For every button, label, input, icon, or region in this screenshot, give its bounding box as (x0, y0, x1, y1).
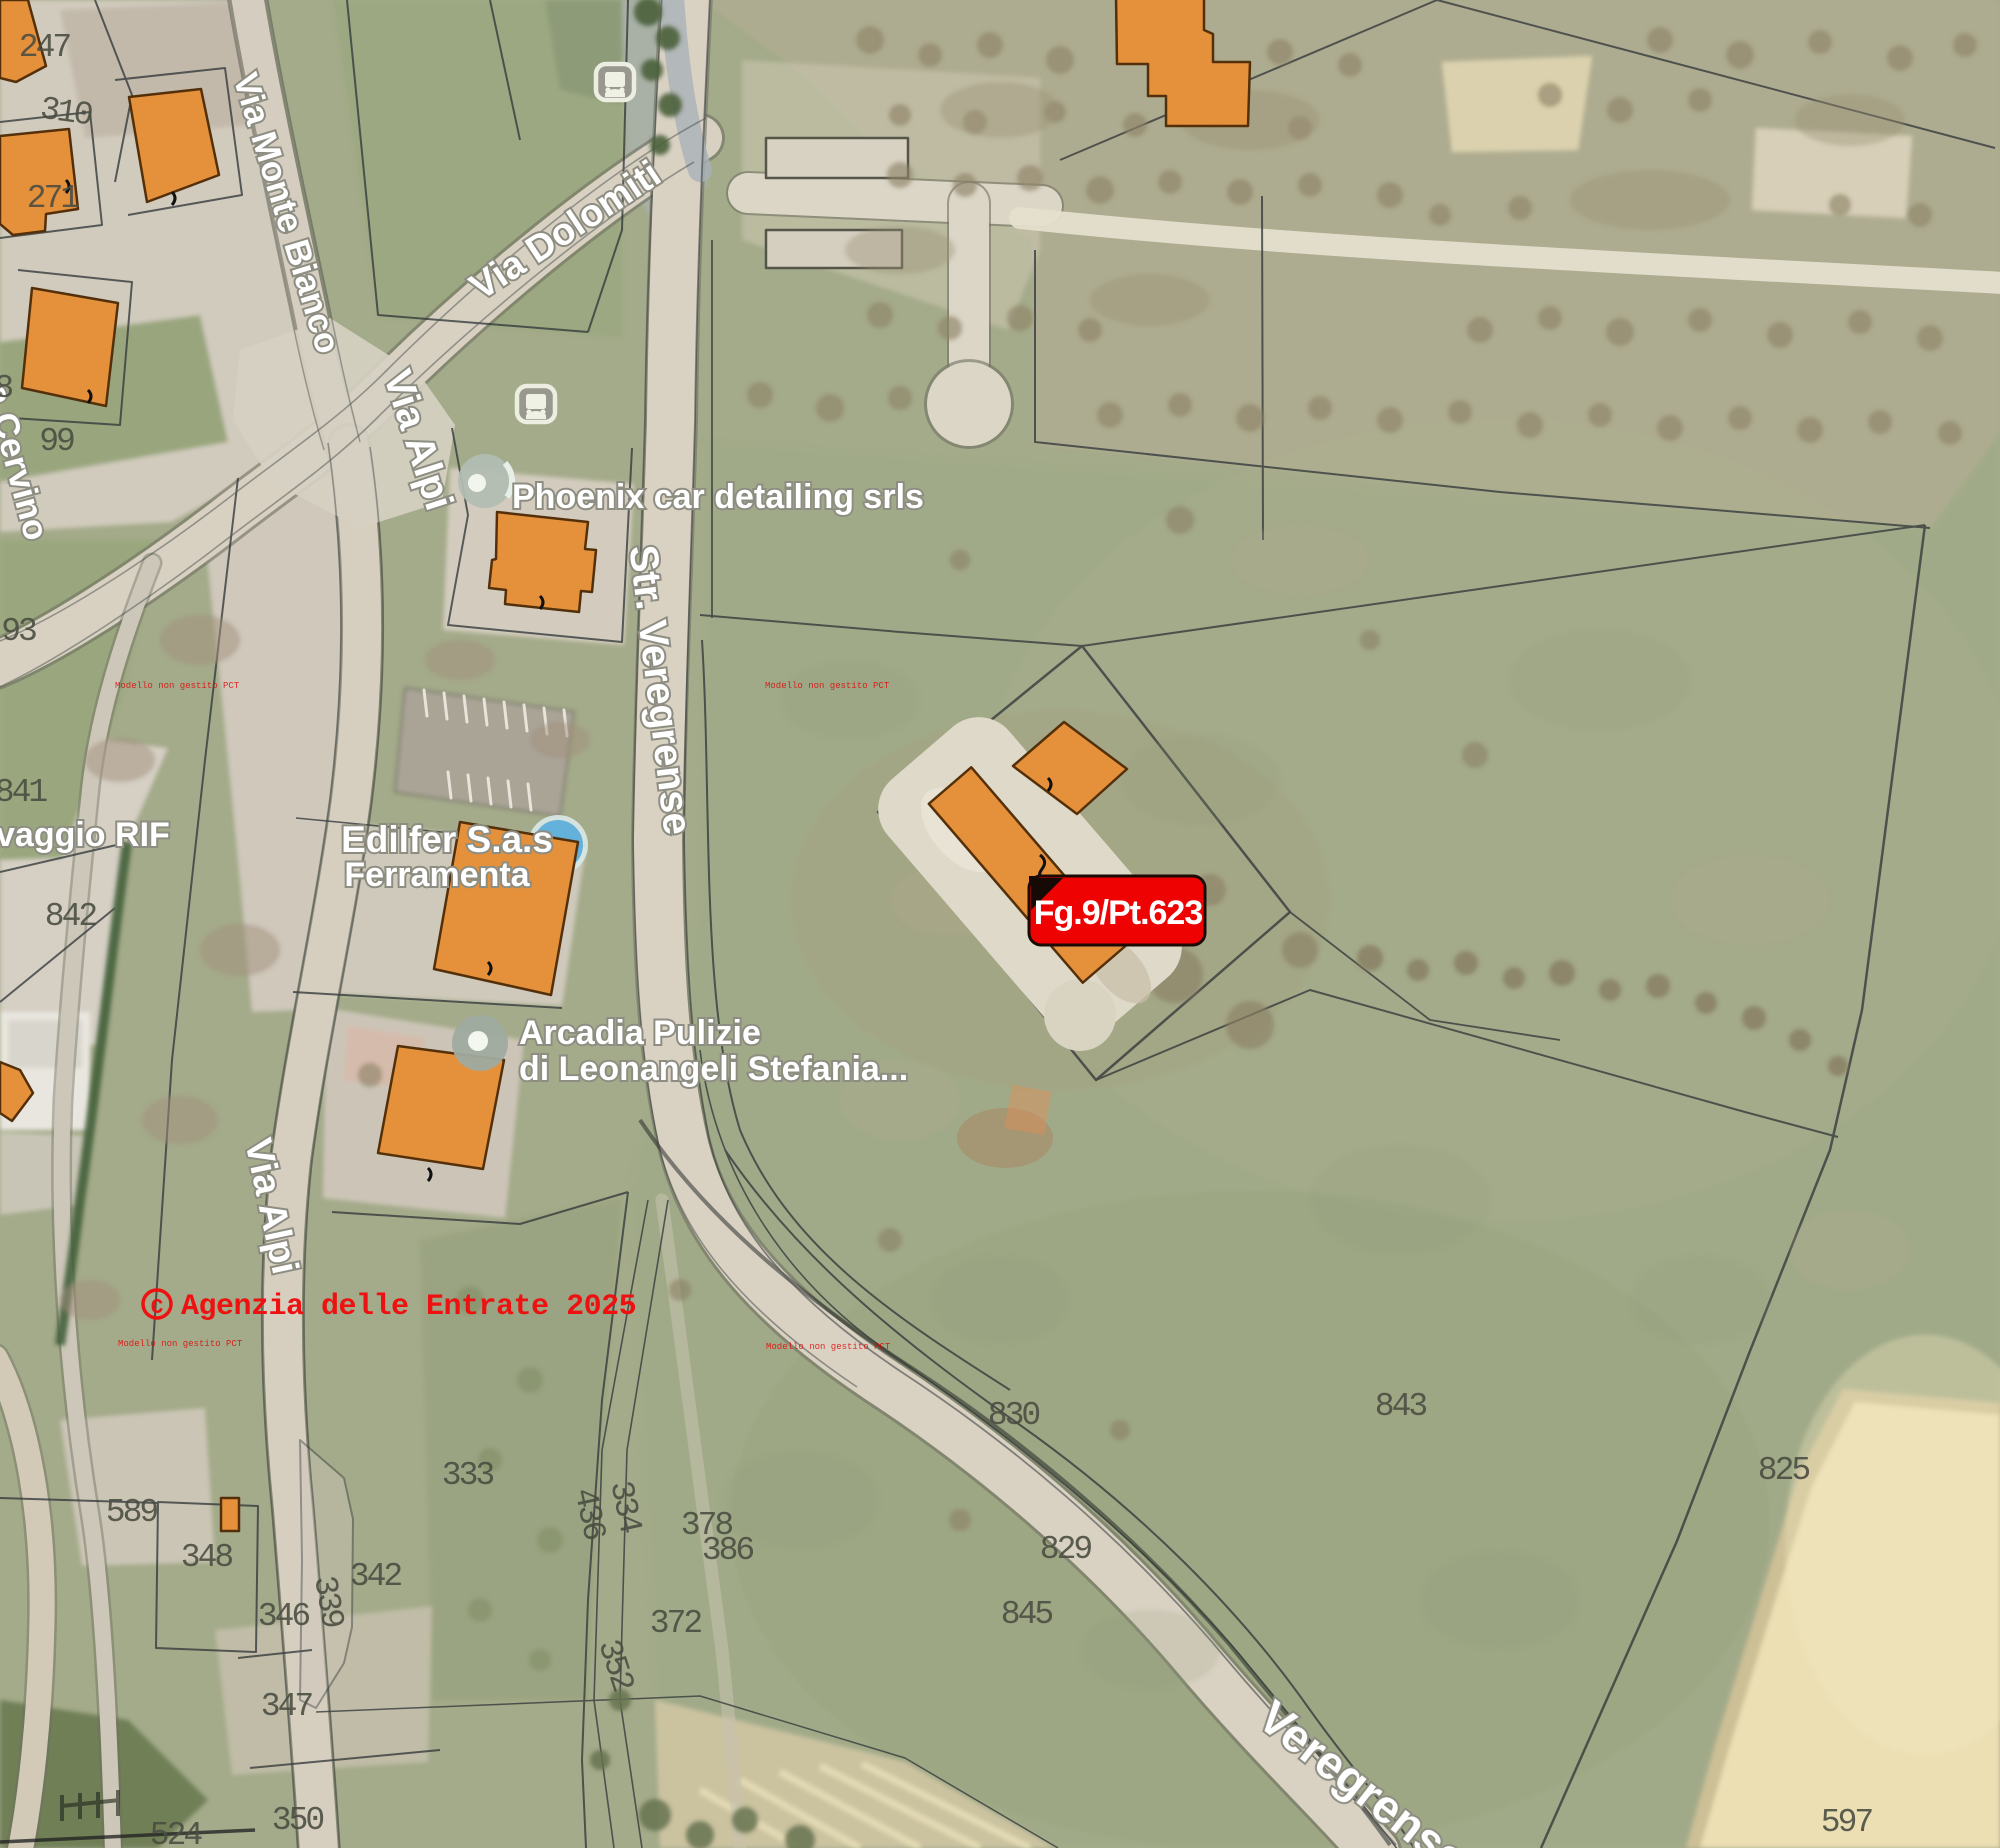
svg-text:99: 99 (39, 423, 74, 460)
svg-text:589: 589 (106, 1494, 158, 1531)
svg-text:247: 247 (19, 29, 71, 66)
svg-text:271: 271 (27, 180, 80, 217)
svg-text:Modello non gestito PCT: Modello non gestito PCT (115, 681, 240, 691)
svg-text:93: 93 (1, 613, 36, 650)
svg-text:310: 310 (38, 91, 94, 135)
svg-text:842: 842 (45, 898, 97, 935)
svg-text:829: 829 (1040, 1531, 1092, 1568)
svg-text:346: 346 (258, 1598, 310, 1635)
svg-text:Modello non gestito PCT: Modello non gestito PCT (118, 1339, 243, 1349)
svg-text:Modello non gestito PCT: Modello non gestito PCT (766, 1342, 891, 1352)
svg-text:Fg.9/Pt.623: Fg.9/Pt.623 (1034, 894, 1203, 932)
svg-text:841: 841 (0, 774, 47, 811)
svg-text:843: 843 (1375, 1388, 1427, 1425)
svg-text:398: 398 (0, 370, 12, 407)
svg-text:845: 845 (1001, 1596, 1053, 1633)
svg-text:Modello non gestito PCT: Modello non gestito PCT (765, 681, 890, 691)
svg-text:386: 386 (702, 1532, 754, 1569)
svg-text:Edilfer S.a.s: Edilfer S.a.s (341, 819, 553, 860)
svg-text:524: 524 (150, 1817, 203, 1848)
svg-text:347: 347 (261, 1688, 313, 1725)
svg-text:372: 372 (650, 1605, 702, 1642)
svg-text:825: 825 (1758, 1452, 1810, 1489)
svg-text:Agenzia delle Entrate 2025: Agenzia delle Entrate 2025 (181, 1290, 636, 1324)
svg-text:Ferramenta: Ferramenta (344, 856, 530, 894)
svg-text:597: 597 (1821, 1804, 1873, 1841)
svg-text:Arcadia Pulizie: Arcadia Pulizie (519, 1014, 761, 1052)
svg-text:Phoenix car detailing srls: Phoenix car detailing srls (512, 478, 924, 516)
svg-text:vaggio RIF: vaggio RIF (0, 816, 170, 854)
svg-text:830: 830 (988, 1397, 1040, 1434)
svg-text:C: C (151, 1297, 164, 1320)
svg-text:342: 342 (350, 1558, 402, 1595)
svg-text:333: 333 (442, 1457, 494, 1494)
svg-text:di Leonangeli Stefania...: di Leonangeli Stefania... (519, 1050, 908, 1088)
svg-text:350: 350 (272, 1802, 324, 1839)
svg-text:348: 348 (181, 1539, 233, 1576)
